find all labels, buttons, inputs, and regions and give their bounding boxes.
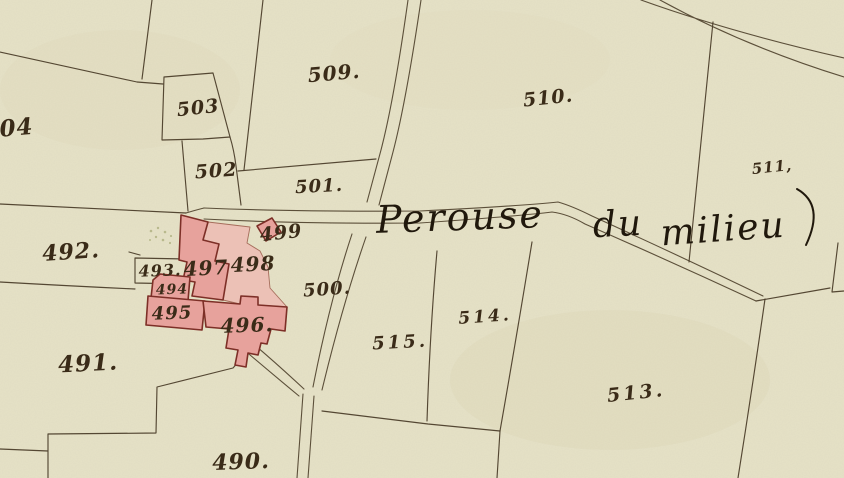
parcel-label-502: 502 [194,159,238,184]
parcel-label-496: 496. [220,312,274,338]
place-name-word-3: milieu [659,205,787,255]
parcel-label-494: 494 [156,281,189,298]
parcel-label-491: 491. [57,348,118,378]
parcel-label-509: 509. [307,59,362,88]
cadastral-map: 490. 491. 492. 493. 494 495 496. 497 498… [0,0,844,478]
place-name-word-2: du [592,203,644,247]
parcel-label-514: 514. [458,305,513,329]
parcel-label-500: 500. [302,277,351,301]
parcel-label-504: 504 [0,113,35,144]
parcel-label-495: 495 [151,302,192,324]
parcel-label-499: 499 [259,220,304,246]
map-canvas: 490. 491. 492. 493. 494 495 496. 497 498… [0,0,844,478]
parcel-label-497: 497 [183,255,229,281]
parcel-label-493: 493. [138,260,182,280]
parcel-label-490: 490. [212,448,270,476]
place-name-word-1: Perouse [374,192,544,242]
parcel-label-503: 503 [176,95,221,121]
parcel-label-501: 501. [295,175,344,198]
parcel-label-515: 515. [372,331,429,355]
parcel-label-498: 498 [230,251,276,277]
parcel-label-492: 492. [41,237,100,267]
